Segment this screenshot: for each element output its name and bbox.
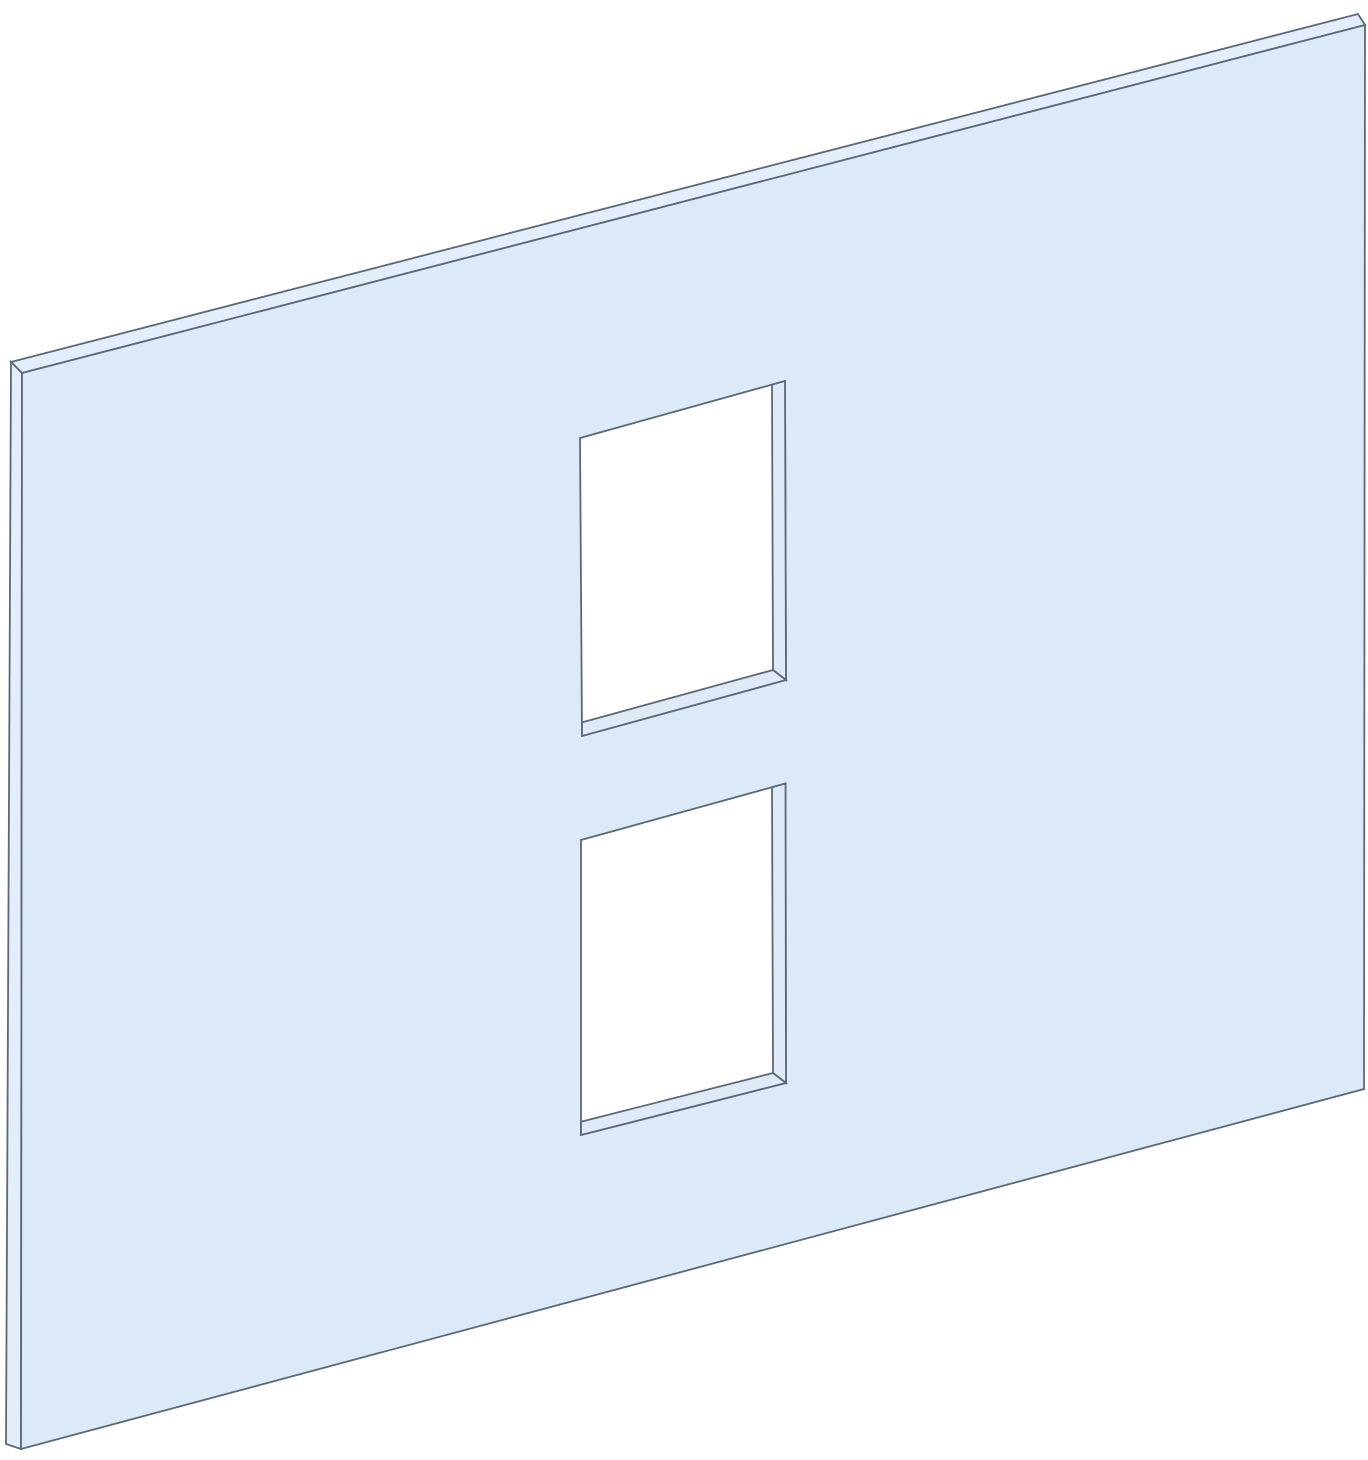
panel-technical-drawing	[0, 0, 1368, 1460]
upper-cutout-right-inner-wall	[772, 381, 786, 680]
panel-drawing-canvas	[0, 0, 1368, 1460]
panel-front-face	[21, 25, 1365, 1449]
panel-left-edge-face	[6, 362, 22, 1449]
lower-cutout-right-inner-wall	[772, 784, 786, 1084]
